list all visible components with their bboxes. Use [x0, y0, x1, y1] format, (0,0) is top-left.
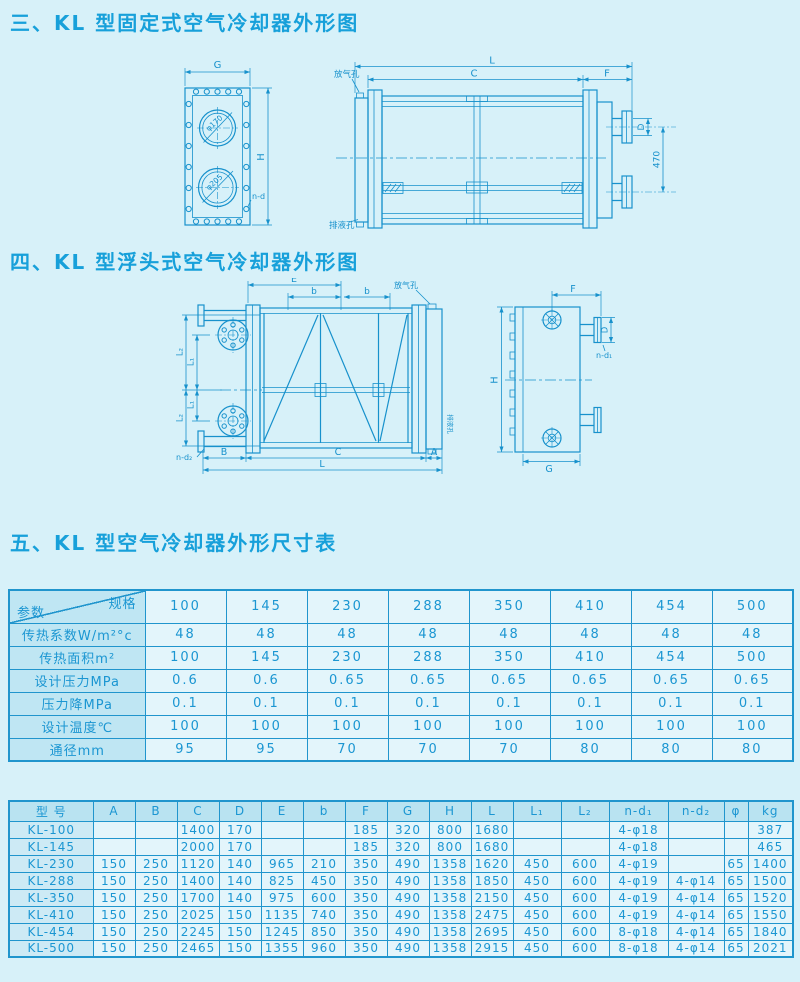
- floating-front-view: E b b 放气孔 L₂ L₂ L₁ L₁ B C A: [176, 278, 456, 474]
- bolt-holes-label-nd2: n-d₂: [176, 453, 192, 462]
- dim-value-cell: 1358: [429, 872, 471, 889]
- spec-column-header: 288: [388, 590, 469, 623]
- dim-value-cell: 850: [303, 923, 345, 940]
- param-value-cell: 100: [388, 715, 469, 738]
- dim-value-cell: 140: [219, 872, 261, 889]
- dim-value-cell: 1120: [177, 855, 219, 872]
- param-row: 设计压力MPa0.60.60.650.650.650.650.650.65: [9, 669, 793, 692]
- param-row-label: 设计压力MPa: [9, 669, 145, 692]
- dim-label-L: L: [489, 56, 495, 67]
- dim-label-H: H: [256, 153, 267, 161]
- dim-value-cell: [303, 838, 345, 855]
- param-value-cell: 100: [550, 715, 631, 738]
- dim-label-G: G: [545, 464, 552, 475]
- dim-value-cell: 65: [724, 923, 748, 940]
- dim-column-header: L: [471, 801, 513, 821]
- dim-value-cell: [513, 821, 561, 838]
- dim-column-header: n-d₁: [609, 801, 668, 821]
- dim-label-B: B: [221, 447, 228, 458]
- dim-column-header: B: [135, 801, 177, 821]
- dim-value-cell: 1550: [748, 906, 793, 923]
- dim-value-cell: 250: [135, 906, 177, 923]
- dim-value-cell: 150: [219, 923, 261, 940]
- dim-column-header: n-d₂: [668, 801, 724, 821]
- dim-value-cell: 1500: [748, 872, 793, 889]
- param-value-cell: 0.1: [712, 692, 793, 715]
- dim-value-cell: 250: [135, 923, 177, 940]
- dim-value-cell: 4-φ19: [609, 872, 668, 889]
- section-title-floating-type: 四、KL 型浮头式空气冷却器外形图: [10, 246, 359, 275]
- param-value-cell: 70: [388, 738, 469, 761]
- spec-column-header: 410: [550, 590, 631, 623]
- dim-value-cell: 4-φ14: [668, 889, 724, 906]
- param-value-cell: 0.1: [307, 692, 388, 715]
- param-row: 设计温度℃100100100100100100100100: [9, 715, 793, 738]
- param-value-cell: 350: [469, 646, 550, 669]
- dim-value-cell: [513, 838, 561, 855]
- vent-hole-label: 放气孔: [334, 69, 360, 80]
- param-row-label: 传热面积m²: [9, 646, 145, 669]
- bolt-holes-label: n-d: [252, 192, 265, 201]
- dim-value-cell: 8-φ18: [609, 923, 668, 940]
- dim-value-cell: 1358: [429, 855, 471, 872]
- dim-value-cell: 350: [345, 872, 387, 889]
- dim-value-cell: 140: [219, 855, 261, 872]
- dim-value-cell: 320: [387, 821, 429, 838]
- vent-hole-label: 放气孔: [394, 280, 418, 290]
- dim-value-cell: [93, 821, 135, 838]
- dim-value-cell: 150: [93, 940, 135, 957]
- param-value-cell: 0.1: [145, 692, 226, 715]
- param-value-cell: 95: [226, 738, 307, 761]
- dim-value-cell: 170: [219, 838, 261, 855]
- param-value-cell: 100: [712, 715, 793, 738]
- corner-label-param: 参数: [17, 602, 45, 621]
- param-value-cell: 70: [307, 738, 388, 761]
- param-value-cell: 500: [712, 646, 793, 669]
- dim-value-cell: 4-φ14: [668, 872, 724, 889]
- dim-value-cell: 2245: [177, 923, 219, 940]
- dim-label-H: H: [490, 376, 501, 383]
- param-value-cell: 0.1: [388, 692, 469, 715]
- dim-label-470: 470: [653, 151, 663, 168]
- dim-value-cell: 150: [93, 872, 135, 889]
- dim-value-cell: 170: [219, 821, 261, 838]
- param-value-cell: 230: [307, 646, 388, 669]
- param-value-cell: 0.65: [550, 669, 631, 692]
- fixed-front-view: φ170 φ205 G H n-d: [185, 60, 272, 225]
- dim-value-cell: 740: [303, 906, 345, 923]
- dim-column-header: H: [429, 801, 471, 821]
- dim-value-cell: 65: [724, 889, 748, 906]
- dim-value-cell: 4-φ14: [668, 906, 724, 923]
- dim-value-cell: 1850: [471, 872, 513, 889]
- param-value-cell: 80: [712, 738, 793, 761]
- param-value-cell: 48: [388, 623, 469, 646]
- dim-value-cell: 600: [561, 940, 609, 957]
- dim-value-cell: 1358: [429, 940, 471, 957]
- dim-column-header: 型 号: [9, 801, 93, 821]
- dim-value-cell: 1245: [261, 923, 303, 940]
- dim-column-header: C: [177, 801, 219, 821]
- dim-label-L2a: L₂: [176, 348, 186, 356]
- dimension-table: 型 号ABCDEbFGHLL₁L₂n-d₁n-d₂φkg KL-10014001…: [8, 800, 794, 958]
- param-value-cell: 48: [145, 623, 226, 646]
- param-value-cell: 95: [145, 738, 226, 761]
- dim-value-cell: 450: [513, 872, 561, 889]
- dim-value-cell: [668, 855, 724, 872]
- param-value-cell: 80: [550, 738, 631, 761]
- bolt-holes-label-nd1: n-d₁: [596, 351, 612, 360]
- floating-side-view: D n-d₁ F H G: [490, 284, 616, 475]
- dim-value-cell: 150: [93, 923, 135, 940]
- model-cell: KL-500: [9, 940, 93, 957]
- dim-table-row: KL-3501502501700140975600350490135821504…: [9, 889, 793, 906]
- model-cell: KL-350: [9, 889, 93, 906]
- dim-value-cell: 600: [561, 889, 609, 906]
- param-value-cell: 410: [550, 646, 631, 669]
- dim-value-cell: 960: [303, 940, 345, 957]
- param-value-cell: 100: [307, 715, 388, 738]
- dim-value-cell: 1680: [471, 838, 513, 855]
- dim-value-cell: 600: [561, 855, 609, 872]
- dim-value-cell: 1358: [429, 906, 471, 923]
- dim-value-cell: 1358: [429, 923, 471, 940]
- dim-value-cell: 450: [513, 906, 561, 923]
- dim-value-cell: 490: [387, 940, 429, 957]
- dim-value-cell: [561, 838, 609, 855]
- dim-label-L: L: [319, 459, 325, 470]
- dim-value-cell: 825: [261, 872, 303, 889]
- dim-value-cell: 150: [219, 906, 261, 923]
- param-value-cell: 0.6: [145, 669, 226, 692]
- dim-value-cell: 65: [724, 855, 748, 872]
- dim-value-cell: 250: [135, 872, 177, 889]
- dim-value-cell: 800: [429, 821, 471, 838]
- dim-value-cell: 1358: [429, 889, 471, 906]
- dim-column-header: A: [93, 801, 135, 821]
- param-value-cell: 0.1: [226, 692, 307, 715]
- dim-column-header: kg: [748, 801, 793, 821]
- param-value-cell: 100: [226, 715, 307, 738]
- dim-value-cell: 450: [303, 872, 345, 889]
- dim-label-E: E: [291, 278, 297, 285]
- param-value-cell: 100: [631, 715, 712, 738]
- spec-column-header: 230: [307, 590, 388, 623]
- param-value-cell: 100: [145, 646, 226, 669]
- param-row-label: 压力降MPa: [9, 692, 145, 715]
- dim-value-cell: 150: [219, 940, 261, 957]
- dim-value-cell: 450: [513, 923, 561, 940]
- dim-value-cell: 490: [387, 923, 429, 940]
- drain-hole-label: 排液孔: [446, 414, 455, 434]
- dim-value-cell: 350: [345, 906, 387, 923]
- dim-value-cell: 350: [345, 889, 387, 906]
- dim-column-header: F: [345, 801, 387, 821]
- dim-value-cell: 2475: [471, 906, 513, 923]
- dim-value-cell: 350: [345, 855, 387, 872]
- dim-table-row: KL-5001502502465150135596035049013582915…: [9, 940, 793, 957]
- dim-value-cell: 4-φ14: [668, 923, 724, 940]
- spec-column-header: 350: [469, 590, 550, 623]
- bottom-circle-diameter-label: φ205: [204, 172, 225, 192]
- param-row: 压力降MPa0.10.10.10.10.10.10.10.1: [9, 692, 793, 715]
- dim-value-cell: [668, 821, 724, 838]
- dim-value-cell: [261, 821, 303, 838]
- dim-value-cell: 1520: [748, 889, 793, 906]
- param-value-cell: 70: [469, 738, 550, 761]
- spec-column-header: 454: [631, 590, 712, 623]
- dim-value-cell: 4-φ19: [609, 889, 668, 906]
- param-header-row: 规格 参数 100145230288350410454500: [9, 590, 793, 623]
- dim-value-cell: 600: [561, 872, 609, 889]
- param-value-cell: 0.1: [631, 692, 712, 715]
- param-row-label: 传热系数W/m²°c: [9, 623, 145, 646]
- spec-column-header: 145: [226, 590, 307, 623]
- dim-value-cell: 2465: [177, 940, 219, 957]
- dim-value-cell: 490: [387, 906, 429, 923]
- param-value-cell: 48: [631, 623, 712, 646]
- param-value-cell: 288: [388, 646, 469, 669]
- dim-value-cell: 250: [135, 889, 177, 906]
- dim-label-C: C: [335, 447, 342, 458]
- dim-column-header: φ: [724, 801, 748, 821]
- dim-column-header: E: [261, 801, 303, 821]
- dim-value-cell: 65: [724, 940, 748, 957]
- dim-label-L2b: L₂: [176, 414, 186, 422]
- dim-value-cell: [261, 838, 303, 855]
- dim-value-cell: 210: [303, 855, 345, 872]
- dim-value-cell: 450: [513, 940, 561, 957]
- param-row: 传热系数W/m²°c4848484848484848: [9, 623, 793, 646]
- spec-column-header: 100: [145, 590, 226, 623]
- dim-label-b2: b: [364, 287, 370, 297]
- dim-column-header: G: [387, 801, 429, 821]
- param-value-cell: 0.6: [226, 669, 307, 692]
- drain-hole-label: 排液孔: [329, 220, 355, 231]
- dim-column-header: D: [219, 801, 261, 821]
- dim-label-A: A: [431, 447, 438, 458]
- dim-value-cell: 150: [93, 889, 135, 906]
- dim-value-cell: 1680: [471, 821, 513, 838]
- dim-value-cell: 4-φ19: [609, 906, 668, 923]
- param-value-cell: 48: [226, 623, 307, 646]
- param-value-cell: 0.65: [388, 669, 469, 692]
- dim-label-b1: b: [311, 287, 317, 297]
- param-value-cell: 0.65: [307, 669, 388, 692]
- param-value-cell: 0.65: [631, 669, 712, 692]
- param-value-cell: 80: [631, 738, 712, 761]
- param-row-label: 通径mm: [9, 738, 145, 761]
- dim-column-header: b: [303, 801, 345, 821]
- dim-value-cell: 1840: [748, 923, 793, 940]
- param-row-label: 设计温度℃: [9, 715, 145, 738]
- param-value-cell: 100: [145, 715, 226, 738]
- dim-value-cell: 600: [561, 923, 609, 940]
- dim-value-cell: 1400: [748, 855, 793, 872]
- dim-value-cell: 4-φ18: [609, 821, 668, 838]
- param-value-cell: 145: [226, 646, 307, 669]
- model-cell: KL-410: [9, 906, 93, 923]
- model-cell: KL-100: [9, 821, 93, 838]
- dim-label-D: D: [601, 326, 611, 333]
- fixed-side-view: 放气孔: [329, 56, 676, 232]
- dim-value-cell: 1400: [177, 872, 219, 889]
- param-value-cell: 100: [469, 715, 550, 738]
- dim-value-cell: 1400: [177, 821, 219, 838]
- dim-label-C: C: [471, 69, 478, 80]
- dim-value-cell: 2025: [177, 906, 219, 923]
- dim-value-cell: [668, 838, 724, 855]
- dim-value-cell: 450: [513, 889, 561, 906]
- section-title-fixed-type: 三、KL 型固定式空气冷却器外形图: [10, 7, 359, 36]
- dim-table-row: KL-2881502501400140825450350490135818504…: [9, 872, 793, 889]
- dim-value-cell: 185: [345, 821, 387, 838]
- dim-value-cell: 320: [387, 838, 429, 855]
- dim-value-cell: 140: [219, 889, 261, 906]
- model-cell: KL-145: [9, 838, 93, 855]
- param-value-cell: 48: [469, 623, 550, 646]
- dim-value-cell: 490: [387, 855, 429, 872]
- dim-value-cell: 490: [387, 872, 429, 889]
- dim-value-cell: 965: [261, 855, 303, 872]
- dim-value-cell: 490: [387, 889, 429, 906]
- dim-value-cell: 1700: [177, 889, 219, 906]
- dim-value-cell: 1355: [261, 940, 303, 957]
- param-value-cell: 0.65: [469, 669, 550, 692]
- dim-table-row: KL-2301502501120140965210350490135816204…: [9, 855, 793, 872]
- dim-value-cell: 4-φ14: [668, 940, 724, 957]
- dim-value-cell: [724, 838, 748, 855]
- param-value-cell: 454: [631, 646, 712, 669]
- model-cell: KL-454: [9, 923, 93, 940]
- dim-label-F: F: [604, 69, 610, 80]
- dim-value-cell: 65: [724, 872, 748, 889]
- dim-value-cell: [561, 821, 609, 838]
- dim-value-cell: 4-φ19: [609, 855, 668, 872]
- dim-value-cell: 2150: [471, 889, 513, 906]
- dim-label-L1a: L₁: [187, 358, 197, 366]
- param-value-cell: 48: [550, 623, 631, 646]
- dim-value-cell: 4-φ18: [609, 838, 668, 855]
- dim-value-cell: 65: [724, 906, 748, 923]
- dim-label-G: G: [214, 60, 222, 71]
- model-cell: KL-230: [9, 855, 93, 872]
- dim-value-cell: 800: [429, 838, 471, 855]
- param-row: 传热面积m²100145230288350410454500: [9, 646, 793, 669]
- dim-value-cell: 350: [345, 940, 387, 957]
- dim-value-cell: 600: [561, 906, 609, 923]
- dim-value-cell: 600: [303, 889, 345, 906]
- dim-label-L1b: L₁: [187, 401, 197, 409]
- dim-value-cell: 2021: [748, 940, 793, 957]
- model-cell: KL-288: [9, 872, 93, 889]
- dim-value-cell: 250: [135, 940, 177, 957]
- dim-value-cell: 1620: [471, 855, 513, 872]
- dim-value-cell: 2695: [471, 923, 513, 940]
- dim-value-cell: 150: [93, 855, 135, 872]
- dim-value-cell: 250: [135, 855, 177, 872]
- dim-value-cell: 185: [345, 838, 387, 855]
- dim-value-cell: 150: [93, 906, 135, 923]
- param-value-cell: 48: [307, 623, 388, 646]
- spec-column-header: 500: [712, 590, 793, 623]
- dim-value-cell: 8-φ18: [609, 940, 668, 957]
- param-row: 通径mm9595707070808080: [9, 738, 793, 761]
- dim-value-cell: 2000: [177, 838, 219, 855]
- param-value-cell: 0.65: [712, 669, 793, 692]
- floating-type-drawing: E b b 放气孔 L₂ L₂ L₁ L₁ B C A: [0, 278, 800, 523]
- dim-table-row: KL-145200017018532080016804-φ18465: [9, 838, 793, 855]
- param-value-cell: 0.1: [469, 692, 550, 715]
- dim-value-cell: 2915: [471, 940, 513, 957]
- diagonal-header-cell: 规格 参数: [9, 590, 145, 623]
- dim-value-cell: 350: [345, 923, 387, 940]
- section-title-dimension-table: 五、KL 型空气冷却器外形尺寸表: [10, 527, 337, 556]
- dim-table-row: KL-4541502502245150124585035049013582695…: [9, 923, 793, 940]
- dim-value-cell: [135, 838, 177, 855]
- param-value-cell: 0.1: [550, 692, 631, 715]
- dim-header-row: 型 号ABCDEbFGHLL₁L₂n-d₁n-d₂φkg: [9, 801, 793, 821]
- dim-value-cell: [135, 821, 177, 838]
- catalog-page: 三、KL 型固定式空气冷却器外形图 φ170 φ205 G: [0, 0, 800, 982]
- dim-value-cell: [724, 821, 748, 838]
- dim-value-cell: 1135: [261, 906, 303, 923]
- dim-label-F: F: [570, 284, 575, 295]
- dim-value-cell: [303, 821, 345, 838]
- fixed-type-drawing: φ170 φ205 G H n-d 放气孔: [0, 48, 800, 248]
- dim-column-header: L₁: [513, 801, 561, 821]
- dim-value-cell: 450: [513, 855, 561, 872]
- dim-table-row: KL-4101502502025150113574035049013582475…: [9, 906, 793, 923]
- param-value-cell: 48: [712, 623, 793, 646]
- dim-table-row: KL-100140017018532080016804-φ18387: [9, 821, 793, 838]
- dim-value-cell: 975: [261, 889, 303, 906]
- dim-value-cell: [93, 838, 135, 855]
- dim-value-cell: 387: [748, 821, 793, 838]
- parameter-table: 规格 参数 100145230288350410454500 传热系数W/m²°…: [8, 589, 794, 762]
- dim-value-cell: 465: [748, 838, 793, 855]
- dim-column-header: L₂: [561, 801, 609, 821]
- dim-label-D: D: [637, 123, 647, 130]
- corner-label-spec: 规格: [108, 593, 136, 612]
